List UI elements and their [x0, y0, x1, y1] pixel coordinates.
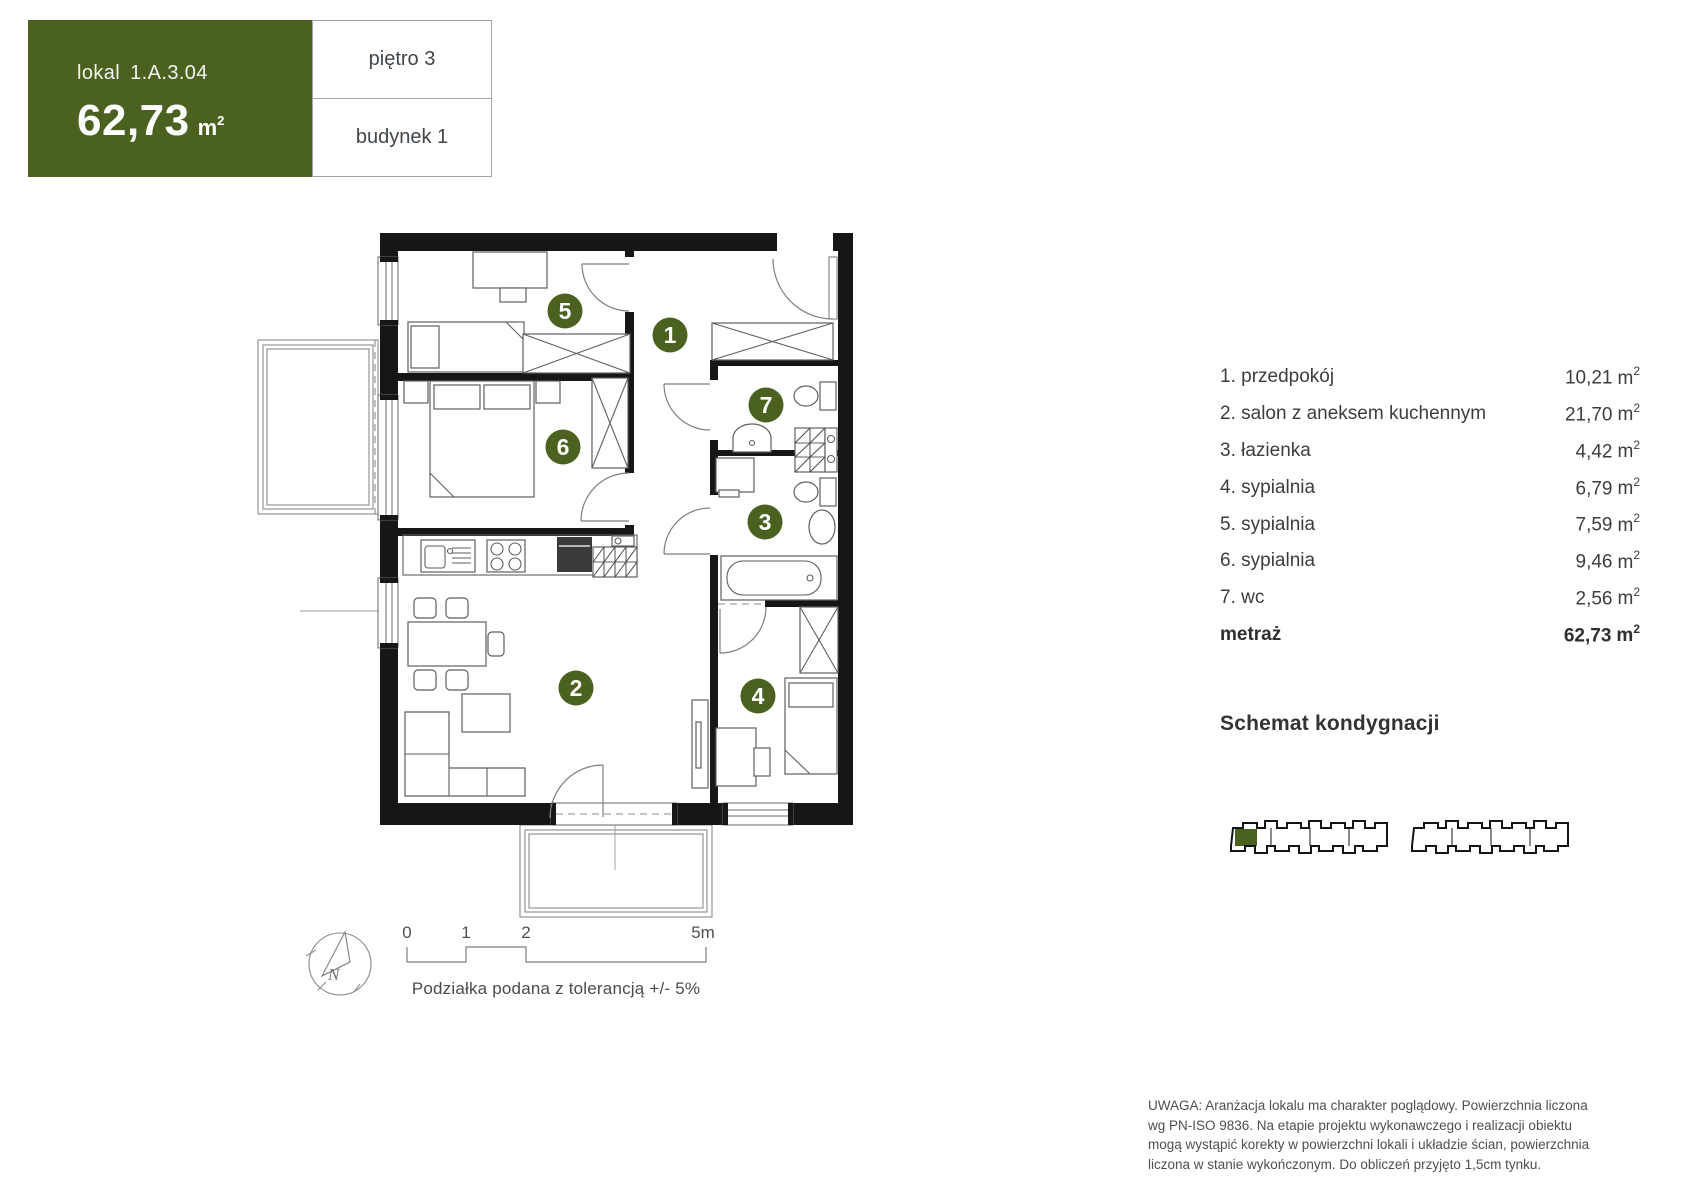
furniture-livingroom-kitchen: [403, 535, 708, 796]
unit-id-line: lokal1.A.3.04: [77, 62, 208, 85]
room-marker-5: 5: [548, 294, 583, 329]
furniture-room-4: [716, 607, 838, 786]
svg-text:6: 6: [557, 434, 570, 460]
room-area: 2,56m2: [1576, 586, 1641, 610]
building-label: budynek 1: [313, 98, 491, 176]
room-marker-2: 2: [559, 671, 594, 706]
room-list-row: 4. sypialnia 6,79m2: [1220, 469, 1640, 506]
room-area: 21,70m2: [1565, 402, 1640, 426]
room-area: 9,46m2: [1576, 549, 1641, 573]
window-room5: [378, 257, 398, 325]
room-list-row: 5. sypialnia 7,59m2: [1220, 506, 1640, 543]
room-area: 10,21m2: [1565, 365, 1640, 389]
room-area: 7,59m2: [1576, 512, 1641, 536]
unit-area-unit-sup: 2: [217, 113, 224, 128]
unit-number: 1.A.3.04: [130, 62, 208, 84]
room-marker-3: 3: [748, 505, 783, 540]
unit-area-unit: m: [198, 115, 218, 140]
room-list-row: 2. salon z aneksem kuchennym 21,70m2: [1220, 396, 1640, 433]
svg-text:1: 1: [461, 923, 470, 942]
floor-building-card: piętro 3 budynek 1: [312, 20, 492, 177]
room-marker-4: 4: [741, 679, 776, 714]
room-label: 7. wc: [1220, 587, 1264, 609]
door-bathroom: [664, 508, 710, 554]
svg-text:5: 5: [559, 298, 572, 324]
north-compass-icon: N: [298, 924, 386, 1012]
room-list-row: 3. łazienka 4,42m2: [1220, 433, 1640, 470]
furniture-hall-wardrobe: [712, 323, 833, 360]
room-label: 1. przedpokój: [1220, 366, 1334, 388]
floor-plan: 1 2 3 4 5 6 7: [240, 210, 870, 930]
room-label: 6. sypialnia: [1220, 550, 1315, 572]
window-room2: [378, 578, 398, 648]
svg-text:2: 2: [570, 675, 583, 701]
room-area: 4,42m2: [1576, 439, 1641, 463]
svg-text:0: 0: [402, 923, 411, 942]
window-room4: [723, 803, 793, 825]
room-label: 2. salon z aneksem kuchennym: [1220, 403, 1486, 425]
unit-label: lokal: [77, 62, 120, 84]
disclaimer-line: UWAGA: Aranżacja lokalu ma charakter pog…: [1148, 1096, 1589, 1116]
room-list: 1. przedpokój 10,21m2 2. salon z aneksem…: [1220, 359, 1640, 653]
scale-caption: Podziałka podana z tolerancją +/- 5%: [400, 979, 712, 999]
highlighted-unit: [1235, 829, 1257, 846]
disclaimer-line: mogą wystąpić korekty w powierzchni loka…: [1148, 1135, 1589, 1155]
balcony-bottom: [520, 825, 712, 917]
scale-bar: 0 1 2 5m: [400, 920, 720, 970]
room-list-total-row: metraż 62,73m2: [1220, 617, 1640, 654]
floor-label: piętro 3: [313, 21, 491, 98]
building-2-outline: [1412, 821, 1568, 853]
door-room4: [718, 604, 766, 653]
unit-area-line: 62,73m2: [77, 96, 224, 146]
room-label: 4. sypialnia: [1220, 477, 1315, 499]
building-1-outline: [1231, 821, 1387, 853]
window-room6: [378, 395, 398, 520]
room-marker-7: 7: [749, 388, 784, 423]
svg-text:2: 2: [521, 923, 530, 942]
svg-text:7: 7: [760, 392, 773, 418]
disclaimer-line: liczona w stanie wykończonym. Do oblicze…: [1148, 1155, 1589, 1175]
svg-text:N: N: [327, 965, 341, 984]
door-room6: [581, 473, 629, 521]
room-list-row: 7. wc 2,56m2: [1220, 580, 1640, 617]
balcony-door-opening: [551, 803, 677, 825]
room-list-row: 6. sypialnia 9,46m2: [1220, 543, 1640, 580]
door-wc: [664, 384, 710, 430]
furniture-room-6: [404, 378, 628, 497]
room-list-row: 1. przedpokój 10,21m2: [1220, 359, 1640, 396]
svg-text:3: 3: [759, 509, 772, 535]
disclaimer-text: UWAGA: Aranżacja lokalu ma charakter pog…: [1148, 1096, 1589, 1174]
room-marker-6: 6: [546, 430, 581, 465]
svg-text:1: 1: [664, 322, 677, 348]
unit-area-value: 62,73: [77, 96, 190, 145]
svg-text:5m: 5m: [691, 923, 715, 942]
room-label: 5. sypialnia: [1220, 514, 1315, 536]
door-room5: [582, 264, 629, 311]
unit-header-card: lokal1.A.3.04 62,73m2: [28, 20, 312, 177]
total-area: 62,73m2: [1564, 623, 1640, 647]
balcony-left: [258, 340, 378, 514]
furniture-room-5: [408, 252, 630, 373]
svg-text:4: 4: [752, 683, 765, 709]
entrance-door: [773, 257, 837, 319]
schemat-heading: Schemat kondygnacji: [1220, 712, 1440, 736]
floor-schematic: [1228, 806, 1573, 868]
room-label: 3. łazienka: [1220, 440, 1311, 462]
disclaimer-line: wg PN-ISO 9836. Na etapie projektu wykon…: [1148, 1116, 1589, 1136]
room-area: 6,79m2: [1576, 476, 1641, 500]
room-marker-1: 1: [653, 318, 688, 353]
total-label: metraż: [1220, 624, 1281, 646]
